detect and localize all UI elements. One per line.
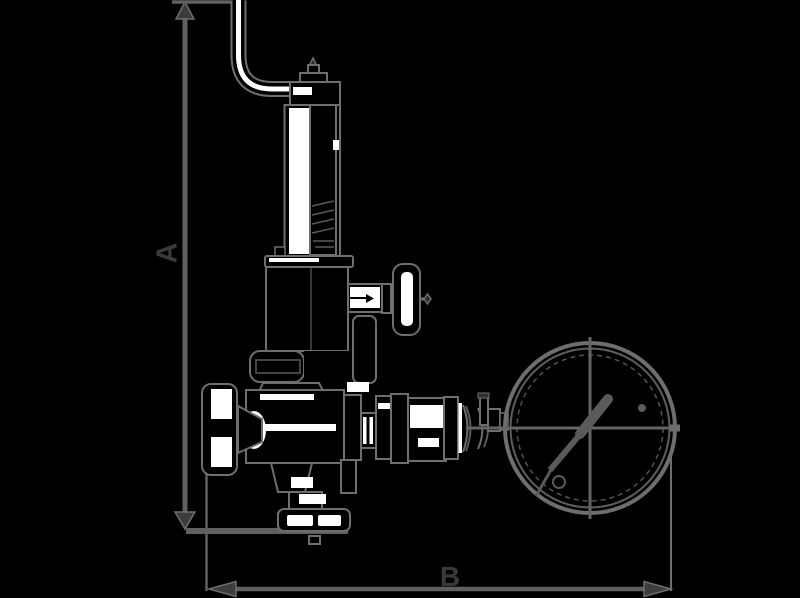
svg-text:A: A bbox=[152, 242, 184, 263]
svg-text:B: B bbox=[440, 561, 460, 592]
